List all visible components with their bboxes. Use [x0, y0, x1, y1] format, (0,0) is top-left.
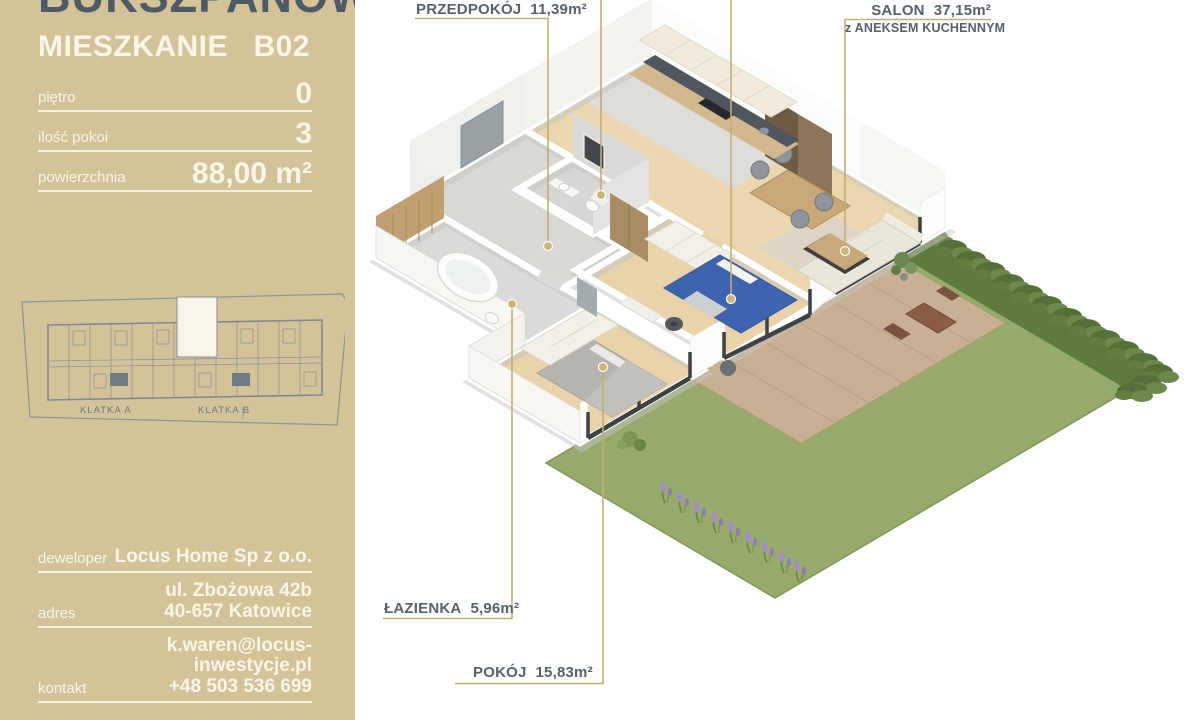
pouf [720, 360, 736, 376]
room-label-przedpokoj: PRZEDPOKÓJ11,39m² [416, 1, 587, 18]
klatka-b-label: KLATKA B [198, 405, 250, 416]
room-sublabel: z ANEKSEM KUCHENNYM [845, 21, 991, 35]
room-label-salon: SALON37,15m² z ANEKSEM KUCHENNYM [845, 2, 991, 35]
spec-row-area: powierzchnia 88,00 m² [38, 159, 312, 192]
room-name: ŁAZIENKA [384, 600, 461, 617]
room-area: 15,83m² [536, 664, 593, 681]
room-label-pokoj: POKÓJ15,83m² [473, 664, 593, 681]
spec-label: powierzchnia [38, 169, 126, 189]
contact-phone: +48 503 536 699 [86, 677, 312, 697]
locus-home-logo: OCUS H OME [38, 714, 312, 720]
developer-name: Locus Home Sp z o.o. [115, 547, 312, 567]
contact-row-kontakt: kontakt k.waren@locus-inwestycje.pl +48 … [38, 636, 312, 703]
spec-value: 88,00 m² [192, 159, 312, 189]
spec-value: 3 [295, 119, 312, 149]
room-name: POKÓJ [473, 664, 527, 681]
contact-label: kontakt [38, 680, 86, 697]
address-street: ul. Zbożowa 42b [164, 581, 312, 601]
room-area: 11,39m² [530, 1, 586, 18]
room-area: 5,96m² [470, 600, 519, 617]
unit-label: MIESZKANIE [38, 32, 228, 62]
spec-label: ilość pokoi [38, 129, 108, 149]
office-chair [665, 317, 683, 331]
project-title: BUKSZPANOWA [38, 0, 307, 19]
spec-row-floor: piętro 0 [38, 79, 312, 112]
contact-row-developer: deweloper Locus Home Sp z o.o. [38, 547, 312, 573]
info-sidebar: BUKSZPANOWA MIESZKANIE B02 piętro 0 iloś… [0, 0, 355, 720]
contact-block: deweloper Locus Home Sp z o.o. adres ul.… [38, 547, 312, 703]
spec-label: piętro [38, 89, 76, 109]
room-label-lazienka: ŁAZIENKA5,96m² [384, 600, 519, 617]
room-name: SALON [871, 2, 925, 19]
contact-label: deweloper [38, 550, 107, 567]
unit-number: B02 [253, 32, 310, 62]
unit-title: MIESZKANIE B02 [38, 32, 310, 62]
highlighted-unit [177, 297, 217, 357]
spec-row-rooms: ilość pokoi 3 [38, 119, 312, 152]
building-location-diagram: KLATKA A KLATKA B [10, 289, 345, 439]
room-area: 37,15m² [934, 2, 991, 19]
klatka-a-label: KLATKA A [80, 405, 132, 416]
contact-label: adres [38, 605, 76, 622]
spec-value: 0 [295, 79, 312, 109]
address-city: 40-657 Katowice [164, 602, 312, 622]
contact-row-address: adres ul. Zbożowa 42b 40-657 Katowice [38, 581, 312, 628]
room-name: PRZEDPOKÓJ [416, 1, 521, 18]
spec-list: piętro 0 ilość pokoi 3 powierzchnia 88,0… [38, 79, 312, 192]
contact-email: k.waren@locus-inwestycje.pl [86, 636, 312, 677]
